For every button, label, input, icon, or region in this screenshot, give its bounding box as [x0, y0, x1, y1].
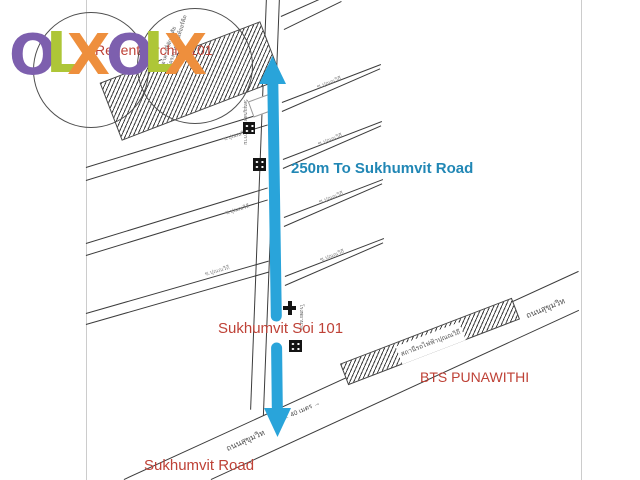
sukhumvit-road-label: Sukhumvit Road: [144, 457, 254, 474]
olx-logo-letter-x: X: [67, 28, 110, 84]
soi-101-label: Sukhumvit Soi 101: [218, 320, 343, 337]
distance-label: 250m To Sukhumvit Road: [291, 160, 473, 177]
map-image: ซ.ปุณณวิถี ซ.ปุณณวิถี ซ.ปุณณวิถี ซ.ปุณณว…: [0, 0, 640, 480]
olx-logo-letter-x: X: [164, 28, 207, 84]
bts-punawithi-label: BTS PUNAWITHI: [420, 369, 529, 385]
